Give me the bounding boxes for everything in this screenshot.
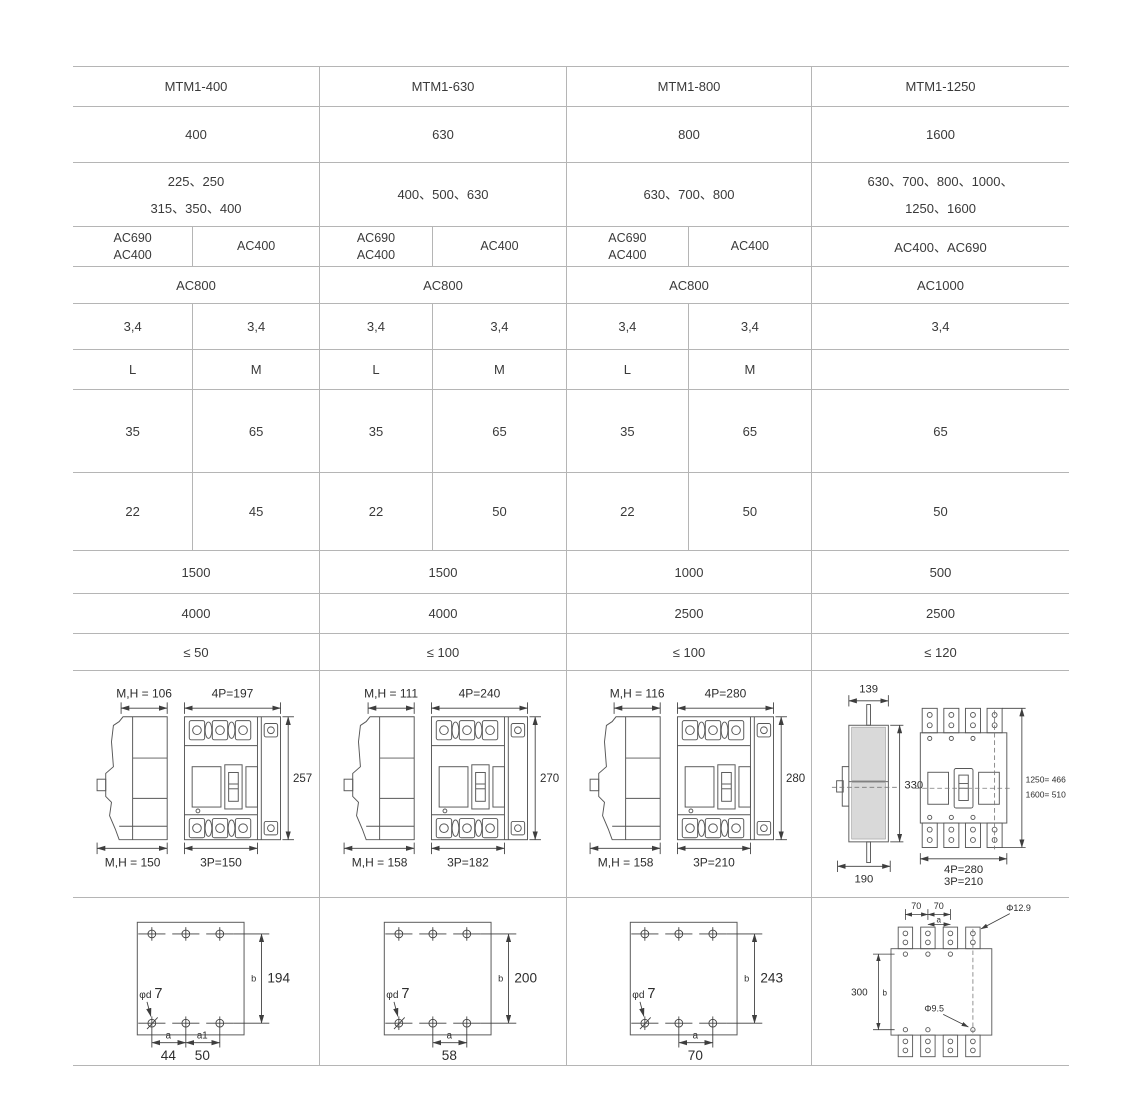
power-loss-cell: ≤ 120 — [812, 634, 1069, 670]
breaker-footprint — [891, 927, 992, 1057]
icu-cell: 35 65 — [320, 390, 567, 472]
ics-cell: 22 50 — [567, 473, 812, 550]
row-rated-voltage: AC690 AC400 AC400 AC690 AC400 AC400 AC69… — [73, 227, 1069, 267]
voltage-left: AC690 AC400 — [73, 227, 193, 266]
icu-right: 65 — [689, 390, 811, 472]
dim-label-width-3p: 3P=150 — [200, 856, 242, 870]
top-hole-diameter: Φ12.9 — [1006, 902, 1031, 912]
ics-left: 22 — [320, 473, 433, 550]
a-label: a — [446, 1031, 452, 1042]
mounting-drawing-mtm1-800: φd7 b 243 a 70 — [572, 899, 807, 1064]
top-dimension-lines — [905, 909, 1009, 929]
pitch-right-label: 70 — [934, 901, 944, 911]
grade-left: L — [567, 350, 689, 389]
insulation-voltage-cell: AC800 — [73, 267, 320, 303]
mounting-holes — [138, 927, 233, 1030]
mounting-drawing-cell: φd7 b 243 a 70 — [567, 898, 812, 1065]
dim-label-width-3p: 3P=210 — [943, 876, 982, 887]
breaker-side-view — [97, 717, 167, 840]
b-value: 243 — [760, 970, 783, 985]
model-cell: MTM1-800 — [567, 67, 812, 106]
poles-cell: 3,4 3,4 — [73, 304, 320, 349]
voltage-cell: AC690 AC400 AC400 — [73, 227, 320, 266]
a-value: 44 — [160, 1048, 176, 1063]
poles-cell: 3,4 3,4 — [567, 304, 812, 349]
ics-cell: 22 45 — [73, 473, 320, 550]
row-mounting-drawings: φd7 b 194 a a1 44 50 — [73, 898, 1069, 1066]
breaker-front-view — [920, 708, 1007, 847]
shell-current-cell: 800 — [567, 107, 812, 162]
row-icu: 35 65 35 65 35 65 65 — [73, 390, 1069, 473]
breaker-side-view — [590, 717, 660, 840]
dim-label-height: 270 — [540, 773, 559, 785]
outline-drawing-cell: M,H = 106 4P=197 — [73, 671, 320, 897]
rated-current-cell: 630、700、800、1000、 1250、1600 — [812, 163, 1069, 226]
mounting-plate — [384, 922, 491, 1035]
a1-label: a1 — [196, 1031, 207, 1042]
model-cell: MTM1-630 — [320, 67, 567, 106]
poles-cell: 3,4 — [812, 304, 1069, 349]
grade-cell: L M — [73, 350, 320, 389]
poles-left: 3,4 — [567, 304, 689, 349]
power-loss-cell: ≤ 50 — [73, 634, 320, 670]
insulation-voltage-cell: AC1000 — [812, 267, 1069, 303]
b-value: 200 — [514, 970, 537, 985]
grade-right: M — [689, 350, 811, 389]
voltage-right: AC400 — [689, 227, 811, 266]
icu-left: 35 — [567, 390, 689, 472]
poles-left: 3,4 — [73, 304, 193, 349]
ics-right: 50 — [433, 473, 566, 550]
outline-drawing-mtm1-400: M,H = 106 4P=197 — [75, 682, 317, 886]
row-breaking-grade: L M L M L M — [73, 350, 1069, 390]
row-model: MTM1-400 MTM1-630 MTM1-800 MTM1-1250 — [73, 67, 1069, 107]
outline-drawing-mtm1-630: M,H = 111 4P=240 — [322, 682, 564, 886]
grade-left: L — [73, 350, 193, 389]
breaker-front-view — [431, 717, 527, 840]
b-value: 300 — [851, 987, 868, 998]
mechanical-life-cell: 2500 — [812, 594, 1069, 633]
model-cell: MTM1-400 — [73, 67, 320, 106]
grade-left: L — [320, 350, 433, 389]
dim-label-depth-top: M,H = 116 — [610, 687, 665, 701]
poles-right: 3,4 — [433, 304, 566, 349]
row-shell-current: 400 630 800 1600 — [73, 107, 1069, 163]
breaker-front-view — [184, 717, 280, 840]
poles-right: 3,4 — [689, 304, 811, 349]
dim-label-height: 280 — [786, 773, 805, 785]
hole-diameter-label: φd7 — [386, 986, 409, 1002]
dim-label-depth-bottom: M,H = 150 — [105, 856, 161, 870]
rated-current-cell: 400、500、630 — [320, 163, 567, 226]
row-power-loss: ≤ 50 ≤ 100 ≤ 100 ≤ 120 — [73, 634, 1069, 671]
row-rated-current: 225、250 315、350、400 400、500、630 630、700、… — [73, 163, 1069, 227]
insulation-voltage-cell: AC800 — [320, 267, 567, 303]
poles-right: 3,4 — [193, 304, 319, 349]
pitch-left-label: 70 — [911, 901, 921, 911]
rated-current-cell: 630、700、800 — [567, 163, 812, 226]
ics-left: 22 — [73, 473, 193, 550]
grade-cell — [812, 350, 1069, 389]
dim-label-width-4p: 4P=280 — [943, 863, 982, 875]
rated-current-cell: 225、250 315、350、400 — [73, 163, 320, 226]
row-outline-drawings: M,H = 106 4P=197 — [73, 671, 1069, 898]
dim-label-height: 257 — [293, 773, 312, 785]
icu-right: 65 — [193, 390, 319, 472]
ics-cell: 22 50 — [320, 473, 567, 550]
row-poles: 3,4 3,4 3,4 3,4 3,4 3,4 3,4 — [73, 304, 1069, 350]
a-value: 70 — [687, 1048, 703, 1063]
b-label: b — [882, 988, 887, 997]
mechanical-life-cell: 4000 — [320, 594, 567, 633]
model-cell: MTM1-1250 — [812, 67, 1069, 106]
a-label: a — [936, 915, 941, 924]
row-ics: 22 45 22 50 22 50 50 — [73, 473, 1069, 551]
grade-cell: L M — [567, 350, 812, 389]
shell-current-cell: 630 — [320, 107, 567, 162]
breaker-side-view — [836, 704, 888, 862]
insulation-voltage-cell: AC800 — [567, 267, 812, 303]
row-electrical-life: 1500 1500 1000 500 — [73, 551, 1069, 594]
dim-label-depth-bottom: M,H = 158 — [598, 856, 654, 870]
a-label: a — [692, 1031, 698, 1042]
dim-label-width-bottom: 190 — [854, 873, 873, 885]
icu-left: 35 — [320, 390, 433, 472]
power-loss-cell: ≤ 100 — [567, 634, 812, 670]
dim-label-width-3p: 3P=182 — [447, 856, 489, 870]
left-dimension-lines — [873, 954, 968, 1030]
b-label: b — [251, 974, 256, 984]
outline-drawing-cell: M,H = 111 4P=240 — [320, 671, 567, 897]
dim-label-width-3p: 3P=210 — [693, 856, 735, 870]
breaker-front-view — [677, 717, 773, 840]
icu-right: 65 — [433, 390, 566, 472]
outline-drawing-cell: 139 — [812, 671, 1069, 897]
dim-label-width-4p: 4P=197 — [212, 687, 254, 701]
icu-cell: 35 65 — [567, 390, 812, 472]
mounting-holes — [631, 927, 726, 1030]
a-value: 58 — [441, 1048, 456, 1063]
electrical-life-cell: 500 — [812, 551, 1069, 593]
mounting-holes — [385, 927, 480, 1030]
mounting-drawing-mtm1-630: φd7 b 200 a 58 — [326, 899, 561, 1064]
dimension-lines — [640, 934, 762, 1048]
icu-left: 35 — [73, 390, 193, 472]
voltage-cell: AC400、AC690 — [812, 227, 1069, 266]
dim-label-width-4p: 4P=280 — [705, 687, 747, 701]
mechanical-life-cell: 2500 — [567, 594, 812, 633]
spec-table: MTM1-400 MTM1-630 MTM1-800 MTM1-1250 400… — [73, 66, 1069, 1066]
dimension-lines — [394, 934, 516, 1048]
mounting-plate — [630, 922, 737, 1035]
shell-current-cell: 400 — [73, 107, 320, 162]
grade-right: M — [193, 350, 319, 389]
dim-label-width-4p: 4P=240 — [459, 687, 501, 701]
bottom-hole-diameter: Φ9.5 — [924, 1003, 944, 1013]
dim-label-depth-top: M,H = 111 — [364, 687, 418, 701]
dim-label-width-top: 139 — [859, 683, 878, 695]
ics-right: 50 — [689, 473, 811, 550]
mounting-drawing-cell: 70 70 a Φ12.9 — [812, 898, 1069, 1065]
breaker-side-view — [344, 717, 414, 840]
mounting-drawing-cell: φd7 b 194 a a1 44 50 — [73, 898, 320, 1065]
a1-value: 50 — [194, 1048, 210, 1063]
grade-cell: L M — [320, 350, 567, 389]
outline-drawing-cell: M,H = 116 4P=280 — [567, 671, 812, 897]
poles-left: 3,4 — [320, 304, 433, 349]
mounting-drawing-mtm1-1250: 70 70 a Φ12.9 — [828, 900, 1053, 1064]
voltage-right: AC400 — [433, 227, 566, 266]
voltage-left: AC690 AC400 — [320, 227, 433, 266]
voltage-left: AC690 AC400 — [567, 227, 689, 266]
outline-drawing-mtm1-1250: 139 — [815, 682, 1067, 887]
b-label: b — [744, 974, 749, 984]
ics-cell: 50 — [812, 473, 1069, 550]
b-value: 194 — [267, 970, 290, 985]
electrical-life-cell: 1500 — [73, 551, 320, 593]
dim-label-depth-bottom: M,H = 158 — [352, 856, 408, 870]
hole-diameter-label: φd7 — [632, 986, 655, 1002]
ics-left: 22 — [567, 473, 689, 550]
row-mechanical-life: 4000 4000 2500 2500 — [73, 594, 1069, 634]
icu-cell: 35 65 — [73, 390, 320, 472]
power-loss-cell: ≤ 100 — [320, 634, 567, 670]
hole-diameter-label: φd7 — [139, 986, 162, 1002]
poles-cell: 3,4 3,4 — [320, 304, 567, 349]
icu-cell: 65 — [812, 390, 1069, 472]
mechanical-life-cell: 4000 — [73, 594, 320, 633]
mounting-drawing-cell: φd7 b 200 a 58 — [320, 898, 567, 1065]
height-note-1600: 1600= 510 — [1025, 789, 1065, 799]
grade-right: M — [433, 350, 566, 389]
b-label: b — [498, 974, 503, 984]
ics-right: 45 — [193, 473, 319, 550]
voltage-cell: AC690 AC400 AC400 — [567, 227, 812, 266]
electrical-life-cell: 1000 — [567, 551, 812, 593]
dim-label-depth-top: M,H = 106 — [116, 687, 172, 701]
mounting-drawing-mtm1-400: φd7 b 194 a a1 44 50 — [79, 899, 314, 1064]
row-insulation-voltage: AC800 AC800 AC800 AC1000 — [73, 267, 1069, 304]
height-note-1250: 1250= 466 — [1025, 774, 1065, 784]
a-label: a — [165, 1031, 171, 1042]
shell-current-cell: 1600 — [812, 107, 1069, 162]
outline-drawing-mtm1-800: M,H = 116 4P=280 — [568, 682, 810, 886]
mounting-plate — [137, 922, 244, 1035]
voltage-cell: AC690 AC400 AC400 — [320, 227, 567, 266]
electrical-life-cell: 1500 — [320, 551, 567, 593]
voltage-right: AC400 — [193, 227, 319, 266]
